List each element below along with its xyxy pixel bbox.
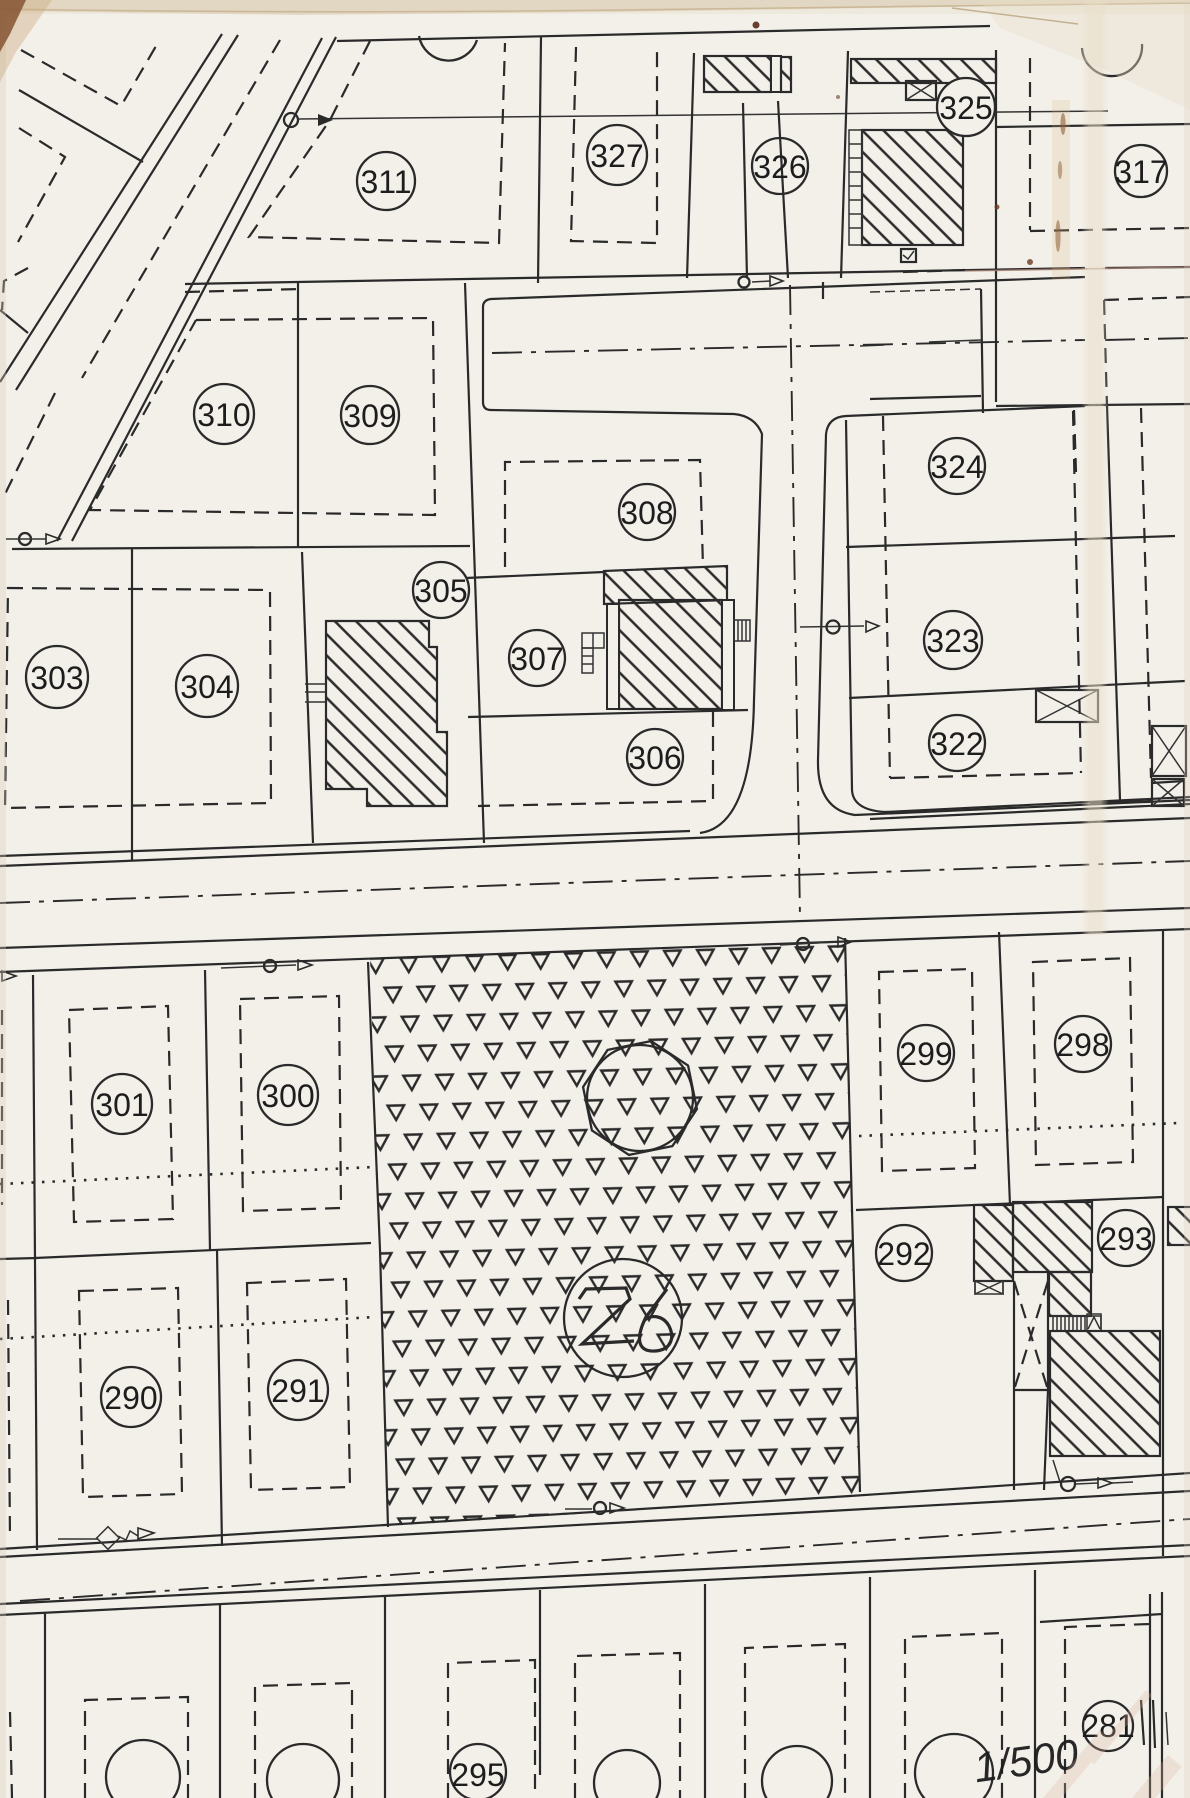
svg-text:307: 307 [510, 641, 563, 677]
svg-text:327: 327 [590, 138, 643, 174]
svg-text:306: 306 [628, 740, 681, 776]
svg-text:298: 298 [1056, 1027, 1109, 1063]
svg-text:324: 324 [930, 449, 983, 485]
svg-text:299: 299 [899, 1036, 952, 1072]
svg-text:304: 304 [180, 669, 233, 705]
svg-text:292: 292 [877, 1236, 930, 1272]
svg-text:308: 308 [620, 495, 673, 531]
svg-text:293: 293 [1099, 1221, 1152, 1257]
svg-text:300: 300 [261, 1078, 314, 1114]
svg-text:309: 309 [343, 398, 396, 434]
svg-text:322: 322 [930, 726, 983, 762]
svg-text:295: 295 [451, 1757, 504, 1793]
svg-text:317: 317 [1114, 154, 1167, 190]
svg-text:325: 325 [939, 90, 992, 126]
svg-text:323: 323 [926, 623, 979, 659]
svg-text:301: 301 [95, 1087, 148, 1123]
svg-text:303: 303 [30, 660, 83, 696]
svg-text:310: 310 [197, 397, 250, 433]
svg-text:305: 305 [414, 573, 467, 609]
svg-text:290: 290 [104, 1380, 157, 1416]
svg-text:291: 291 [271, 1373, 324, 1409]
svg-text:311: 311 [360, 164, 411, 200]
svg-text:326: 326 [753, 149, 806, 185]
